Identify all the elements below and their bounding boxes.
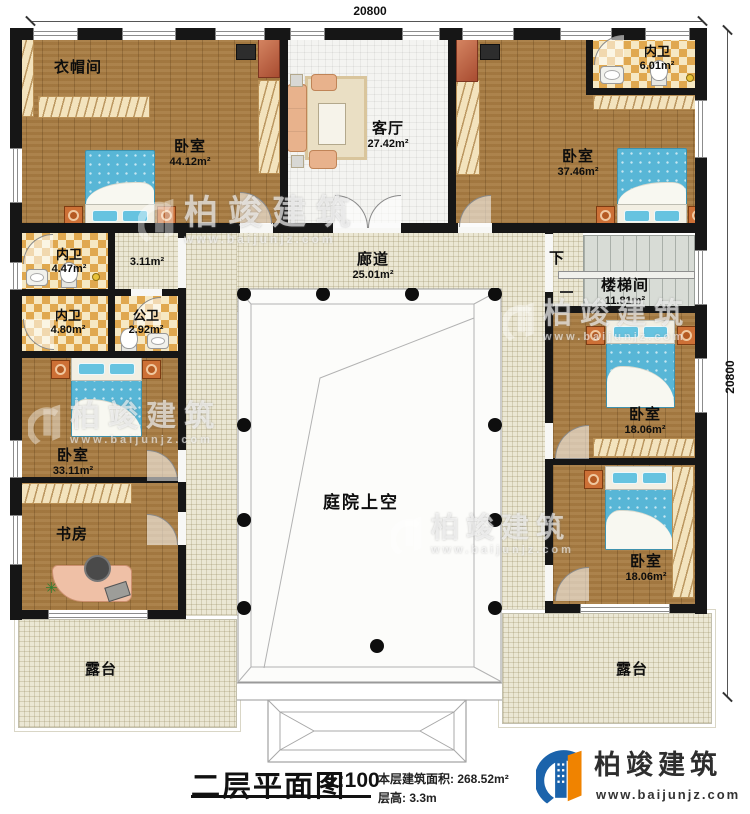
label-stairs-down: 下 [549, 250, 565, 268]
title-underline [191, 795, 371, 798]
bedroom-tr-closet-top [593, 95, 697, 110]
door-gap-study [178, 512, 186, 545]
pillow [92, 210, 118, 222]
floor-height-text: 层高: 3.3m [378, 789, 437, 807]
entrance-porch-roof [237, 680, 502, 768]
label-courtyard: 庭院上空 [323, 493, 399, 513]
sink [26, 269, 48, 286]
dimension-right: 20800 [723, 347, 737, 407]
window [215, 28, 265, 40]
floor-terrace-right [502, 613, 712, 724]
window [10, 515, 22, 565]
courtyard-structure [237, 288, 502, 683]
door-gap-bedroom-r1 [545, 423, 553, 459]
side-table [291, 155, 304, 168]
window [290, 28, 325, 40]
wall-bath-divider-v1 [108, 230, 115, 292]
wall-living-left [280, 28, 288, 228]
window [645, 28, 690, 40]
nightstand [586, 326, 605, 345]
towel-hook [92, 273, 100, 281]
plan-title: 二层平面图 [191, 763, 346, 805]
master-bed [85, 150, 155, 228]
pillow [109, 363, 135, 375]
window [560, 28, 612, 40]
dimension-top: 20800 [340, 4, 400, 18]
brand-name: 柏竣建筑 [594, 752, 722, 779]
sofa-main [287, 84, 307, 152]
nightstand [142, 360, 161, 379]
brand-website: www.baijunjz.com [596, 787, 740, 802]
window [695, 100, 707, 158]
wall-r1-r2-divider [553, 458, 707, 465]
label-study: 书房 [56, 526, 88, 544]
floor-terrace-left [18, 619, 237, 728]
pillow [122, 210, 148, 222]
bedroom-r2-bed [605, 466, 674, 550]
label-bedroom-top-right: 卧室37.46m² [558, 148, 599, 179]
pillow [613, 326, 638, 338]
floor-ring-left [186, 230, 237, 620]
window [33, 28, 78, 40]
floor-ring-right [502, 230, 545, 612]
desk-chair [84, 555, 111, 582]
nightstand [677, 326, 696, 345]
door-gap-hall311 [178, 238, 186, 288]
stair-arrow-dash [560, 291, 573, 293]
pillow [643, 326, 668, 338]
pillow [624, 210, 650, 222]
window [10, 262, 22, 290]
armchair-top [311, 74, 337, 91]
label-bedroom-right-1: 卧室18.06m² [625, 406, 666, 437]
pillow [654, 210, 680, 222]
label-ensuite-top-right: 内卫6.01m² [640, 44, 675, 73]
label-ensuite-480: 内卫4.80m² [51, 308, 86, 337]
floor-plan-canvas: ✳ [0, 0, 750, 814]
bedroom-r1-bed [606, 320, 675, 408]
pillow [612, 472, 637, 484]
bedroom-tr-tv [480, 44, 500, 60]
bedroom-tr-bed [617, 148, 687, 228]
label-corridor: 廊道25.01m² [353, 251, 394, 282]
label-bedroom-right-2: 卧室18.06m² [626, 553, 667, 584]
coffee-table [318, 103, 346, 145]
label-public-bath: 公卫2.92m² [129, 308, 164, 337]
door-gap-master [240, 223, 273, 233]
window [122, 28, 176, 40]
window [462, 28, 514, 40]
pillow [78, 363, 104, 375]
wall-bath-divider-v2 [108, 295, 115, 353]
floor-drain [686, 74, 694, 82]
window [402, 28, 440, 40]
nightstand [584, 470, 603, 489]
wall-living-right [448, 28, 456, 228]
armchair-bottom [309, 150, 337, 169]
label-hallway-311: 3.11m² [130, 256, 164, 269]
window [10, 148, 22, 203]
brand-logo-icon [536, 745, 588, 807]
bedroom-ml-bed [71, 357, 142, 437]
bedroom-r2-closet [672, 466, 694, 598]
window [695, 250, 707, 305]
label-master-bedroom: 卧室44.12m² [170, 138, 211, 169]
cloakroom-wardrobe-bottom [38, 96, 150, 118]
side-table [290, 74, 303, 87]
door-gap-bedroom-r2 [545, 565, 553, 601]
desk-plant: ✳ [45, 579, 58, 597]
bedroom-tr-wardrobe [456, 80, 480, 175]
door-gap-bedroom-ml [178, 450, 186, 482]
wall-bath-divider-h2 [18, 351, 180, 358]
label-bedroom-mid-left: 卧室33.11m² [53, 447, 93, 478]
master-tv [236, 44, 256, 60]
door-gap-public-bath [131, 289, 162, 296]
study-closet [20, 483, 132, 504]
label-stairwell: 楼梯间11.81m² [601, 277, 649, 308]
label-living-room: 客厅27.42m² [368, 120, 409, 151]
wall-ensuite-tr-bottom [586, 88, 707, 95]
plan-scale: 1:100 [326, 769, 380, 793]
pillow [642, 472, 667, 484]
label-terrace-right: 露台 [616, 661, 648, 679]
window [695, 358, 707, 413]
dimension-line-top [30, 21, 703, 22]
label-cloakroom: 衣帽间 [54, 59, 102, 77]
label-terrace-left: 露台 [85, 661, 117, 679]
bedroom-r1-closet [593, 438, 695, 457]
nightstand [51, 360, 70, 379]
window [48, 610, 148, 619]
floor-area-text: 本层建筑面积: 268.52m² [378, 770, 509, 788]
window [580, 604, 670, 613]
label-ensuite-447: 内卫4.47m² [52, 247, 87, 276]
master-wardrobe [258, 80, 280, 174]
window [10, 440, 22, 478]
sink [600, 66, 624, 84]
